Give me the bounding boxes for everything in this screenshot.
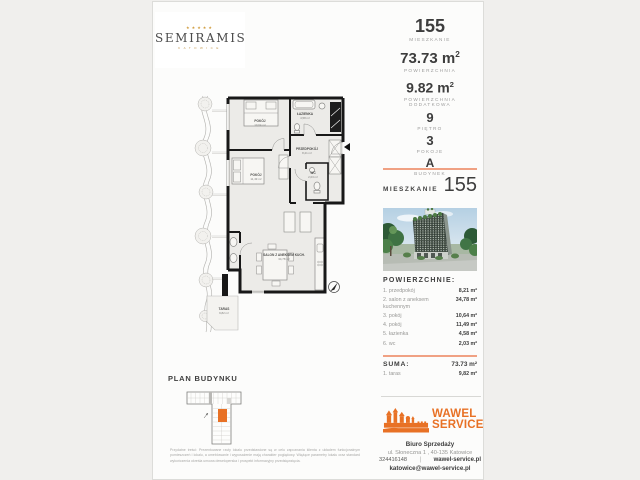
unit-number: 155	[382, 13, 478, 36]
compass-icon	[329, 282, 340, 293]
svg-text:34,78 m²: 34,78 m²	[278, 257, 289, 261]
balcony-slab-lines	[212, 110, 227, 280]
unit-area-label: POWIERZCHNIA	[382, 68, 478, 73]
areas-heading: POWIERZCHNIE:	[383, 277, 477, 284]
shaft	[330, 102, 341, 132]
areas-list: POWIERZCHNIE: 1. przedpokój8,21 m² 2. sa…	[383, 277, 477, 350]
wawel-castle-icon	[383, 407, 429, 433]
disclaimer-text: Przydatne treści: Prezentowane rzuty lok…	[170, 448, 360, 464]
svg-text:11,49 m²: 11,49 m²	[250, 177, 261, 181]
logo-name: SEMIRAMIS	[155, 31, 245, 45]
rooms-count: 3	[382, 134, 478, 148]
area-row: 2. salon z aneksem kuchennym34,78 m²	[383, 297, 477, 310]
extra-area-label: POWIERZCHNIA DODATKOWA	[382, 97, 478, 107]
area-row: 5. łazienka4,58 m²	[383, 331, 477, 338]
website: wawel-service.pl	[434, 457, 481, 463]
building-render-photo	[383, 208, 477, 271]
apartment-floor-plan: POKÓJ 10,64 m² ŁAZIENKA 4,58 m² PRZEDPOK…	[185, 92, 351, 337]
area-row: 1. przedpokój8,21 m²	[383, 288, 477, 295]
mini-compass-icon	[204, 413, 208, 418]
area-row: 4. pokój11,49 m²	[383, 322, 477, 329]
highlighted-unit	[218, 409, 227, 422]
taras-row: 1. taras 9,82 m²	[383, 371, 477, 377]
mieszkanie-label: MIESZKANIE	[383, 186, 438, 193]
unit-number-label: MIESZKANIE	[382, 37, 478, 42]
phone-website-row: 324416148 | wawel-service.pl	[377, 457, 483, 463]
orange-divider-bottom	[383, 355, 477, 357]
unit-summary: 155MIESZKANIE 73.73 m2POWIERZCHNIA 9.82 …	[382, 13, 478, 176]
sales-office-label: Biuro Sprzedaży	[377, 441, 483, 448]
svg-text:10,64 m²: 10,64 m²	[254, 123, 265, 127]
svg-text:9,82 m²: 9,82 m²	[219, 311, 229, 315]
extra-area: 9.82 m2	[382, 77, 478, 96]
contact-block: Biuro Sprzedaży ul. Słoneczna 1 , 40-135…	[377, 441, 483, 472]
rooms-label: POKOJE	[382, 149, 478, 154]
semiramis-logo: ★★★★★ SEMIRAMIS KATOWICE	[155, 12, 245, 68]
footer-divider	[381, 396, 481, 397]
mieszkanie-number: 155	[444, 175, 477, 195]
entrance-arrow	[344, 143, 350, 151]
logo-stars-icon: ★★★★★	[155, 25, 245, 30]
svg-text:4,58 m²: 4,58 m²	[300, 116, 310, 120]
svg-text:8,21 m²: 8,21 m²	[302, 151, 312, 155]
email: katowice@wawel-service.pl	[377, 465, 483, 472]
mieszkanie-row: MIESZKANIE 155	[383, 175, 477, 195]
orange-divider-top	[383, 168, 477, 170]
building-plan-drawing	[183, 386, 249, 448]
floor-label: PIĘTRO	[382, 126, 478, 131]
phone-number: 324416148	[379, 457, 407, 463]
logo-city: KATOWICE	[155, 46, 245, 50]
building-plan-heading: PLAN BUDYNKU	[168, 374, 238, 383]
suma-row: SUMA: 73.73 m²	[383, 361, 477, 368]
area-row: 6. wc2,03 m²	[383, 341, 477, 348]
floor-number: 9	[382, 111, 478, 125]
svg-text:2,03 m²: 2,03 m²	[308, 175, 318, 179]
sales-office-address: ul. Słoneczna 1 , 40-135 Katowice	[377, 450, 483, 456]
wawel-service-wordmark: WAWEL SERVICE	[432, 409, 482, 431]
unit-area: 73.73 m2	[382, 46, 478, 67]
area-row: 3. pokój10,64 m²	[383, 313, 477, 320]
